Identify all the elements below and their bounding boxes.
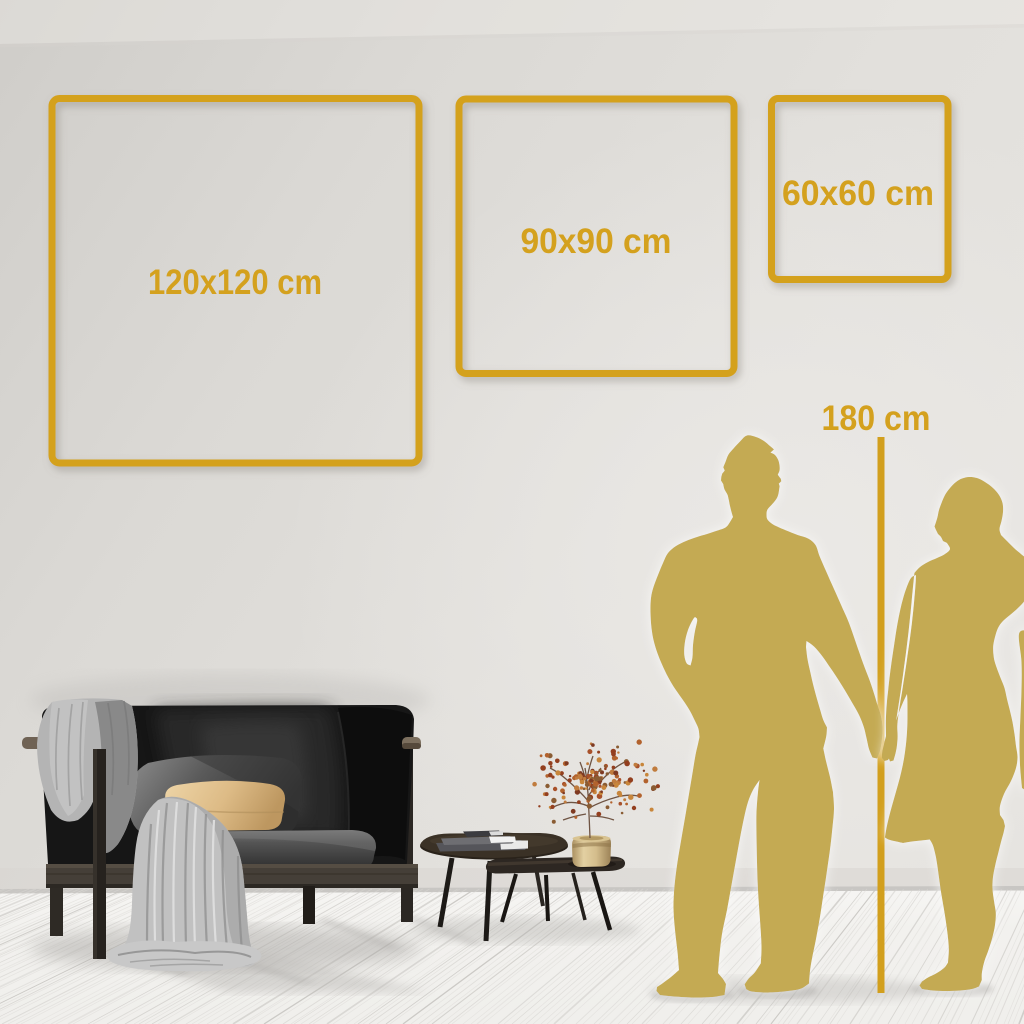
svg-text:60x60 cm: 60x60 cm [782,174,934,213]
svg-text:120x120 cm: 120x120 cm [148,263,322,302]
svg-text:90x90 cm: 90x90 cm [521,222,672,261]
svg-text:180 cm: 180 cm [822,399,931,438]
